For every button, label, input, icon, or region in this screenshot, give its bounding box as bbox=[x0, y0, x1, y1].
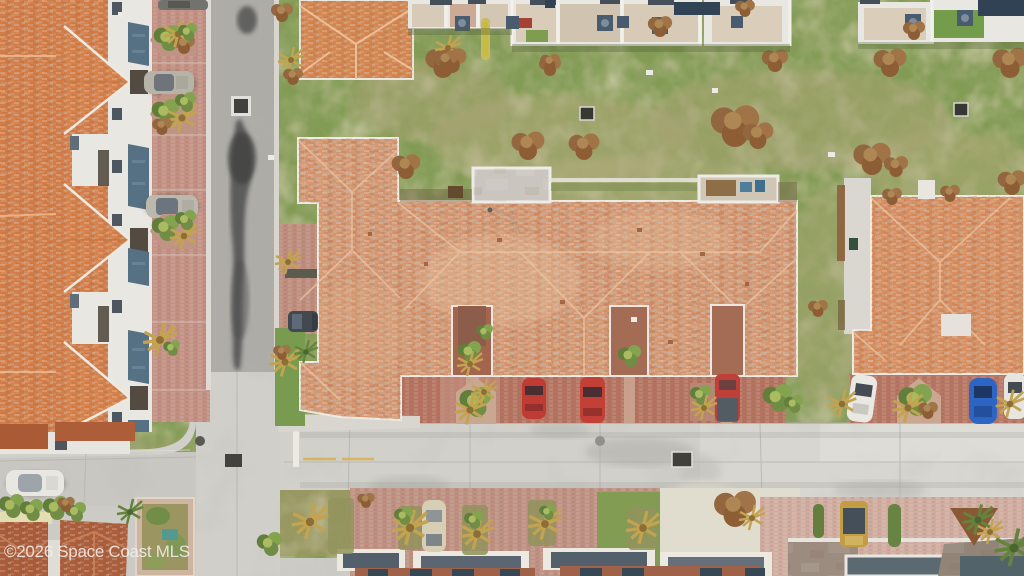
svg-text:©2026 Space Coast MLS: ©2026 Space Coast MLS bbox=[4, 542, 190, 561]
